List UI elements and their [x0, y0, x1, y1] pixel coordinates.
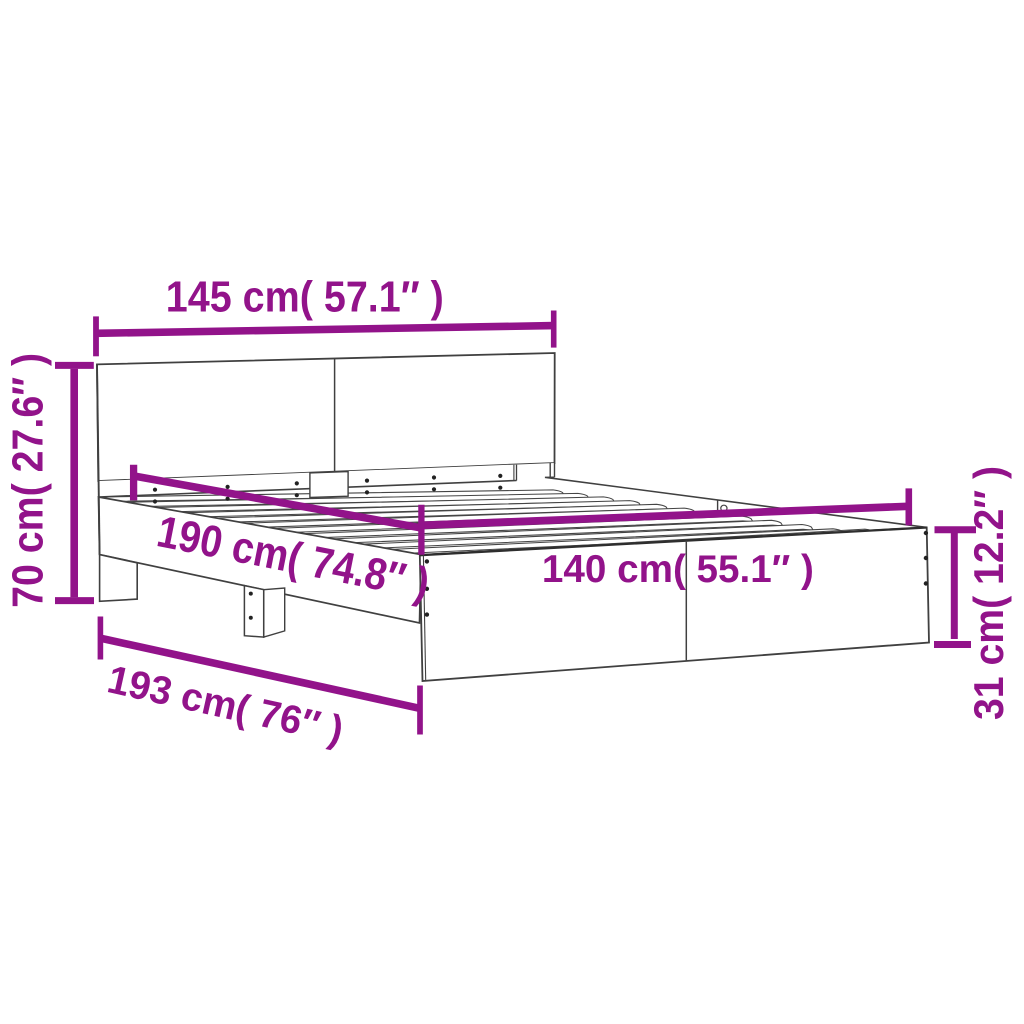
svg-text:145 cm( 57.1″ ): 145 cm( 57.1″ ) [166, 274, 444, 322]
svg-text:31 cm( 12.2″ ): 31 cm( 12.2″ ) [965, 466, 1012, 720]
svg-text:140 cm( 55.1″ ): 140 cm( 55.1″ ) [542, 548, 814, 591]
svg-text:70 cm( 27.6″ ): 70 cm( 27.6″ ) [5, 353, 53, 608]
